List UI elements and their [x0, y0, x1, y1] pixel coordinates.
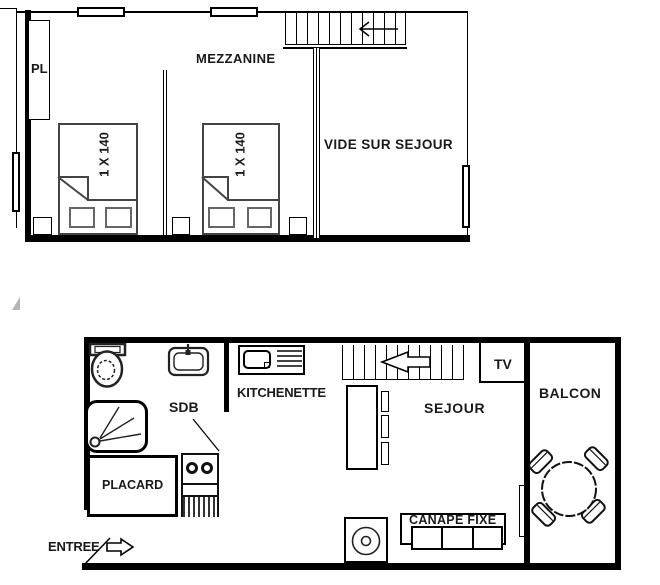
partition-bedrooms — [163, 70, 167, 235]
lower-stairs — [342, 345, 464, 380]
upper-outer-wall-stub — [0, 8, 16, 9]
sejour-label: SEJOUR — [424, 401, 485, 415]
window-left — [12, 152, 20, 212]
sofa-label: CANAPE FIXE — [409, 514, 496, 527]
balcony-door — [519, 485, 525, 537]
bed-2-pillow-left — [208, 207, 235, 228]
stove-burner-right — [201, 462, 213, 474]
stove — [181, 453, 219, 517]
chair-se — [580, 498, 606, 524]
counter — [346, 385, 378, 470]
bed-2-pillow-right — [247, 207, 272, 228]
entree-label: ENTREE — [48, 540, 100, 553]
toilet-icon — [90, 344, 125, 387]
chair-sw — [531, 501, 557, 527]
balcon-label: BALCON — [539, 386, 601, 400]
window-top-2 — [210, 7, 258, 17]
kitchenette-label: KITCHENETTE — [237, 386, 326, 399]
kitchen-sink-faucet — [264, 362, 270, 368]
pl-closet-label: PL — [31, 62, 48, 75]
sofa-cushion-2 — [441, 526, 474, 550]
kitchen-drainer — [277, 350, 302, 370]
bed-1-pillow-left — [69, 207, 95, 228]
smudge-mark — [12, 297, 20, 310]
upper-wall-bottom-thick — [25, 235, 470, 242]
kitchen-sink-unit — [238, 345, 305, 375]
lower-wall-bottom — [82, 563, 621, 570]
shower — [85, 400, 148, 453]
balcony-table-set — [528, 446, 610, 528]
upper-stairs-edge — [283, 47, 407, 49]
lower-wall-right — [615, 337, 621, 570]
partition-void — [313, 48, 320, 238]
void-label: VIDE SUR SEJOUR — [324, 138, 453, 152]
sofa-cushion-1 — [411, 526, 443, 550]
sdb-label: SDB — [169, 400, 199, 414]
lower-wall-top — [84, 337, 621, 343]
bed-1-size-label: 1 X 140 — [98, 129, 111, 181]
bed-1-pillow-right — [105, 207, 132, 228]
tv-label: TV — [494, 357, 512, 371]
entry-arrow — [107, 539, 133, 555]
shelf-1 — [381, 391, 389, 412]
stove-burner-panel — [183, 455, 217, 485]
window-right — [462, 165, 470, 228]
round-table — [542, 462, 596, 516]
wall-sdb-kitchen — [224, 343, 229, 412]
bedside-box-2 — [172, 217, 190, 235]
shelf-2 — [381, 415, 389, 438]
placard-label: PLACARD — [102, 479, 163, 492]
window-top-1 — [77, 7, 125, 17]
shelf-3 — [381, 442, 389, 465]
bed-2-size-label: 1 X 140 — [234, 129, 247, 181]
upper-stairs — [285, 13, 406, 45]
sofa-cushion-3 — [472, 526, 503, 550]
stove-grill — [183, 495, 217, 517]
sdb-leader-line — [193, 419, 219, 451]
floor-plan: PL 1 X 140 1 X 140 MEZZANINE VIDE SUR SE… — [0, 0, 660, 585]
chair-ne — [583, 446, 609, 472]
bedside-box-1 — [33, 217, 52, 235]
chair-nw — [528, 449, 554, 475]
bedside-box-3 — [289, 217, 307, 235]
stove-burner-left — [186, 462, 198, 474]
washing-machine — [344, 517, 388, 563]
mezzanine-label: MEZZANINE — [196, 52, 275, 65]
washbasin-icon — [169, 344, 208, 375]
